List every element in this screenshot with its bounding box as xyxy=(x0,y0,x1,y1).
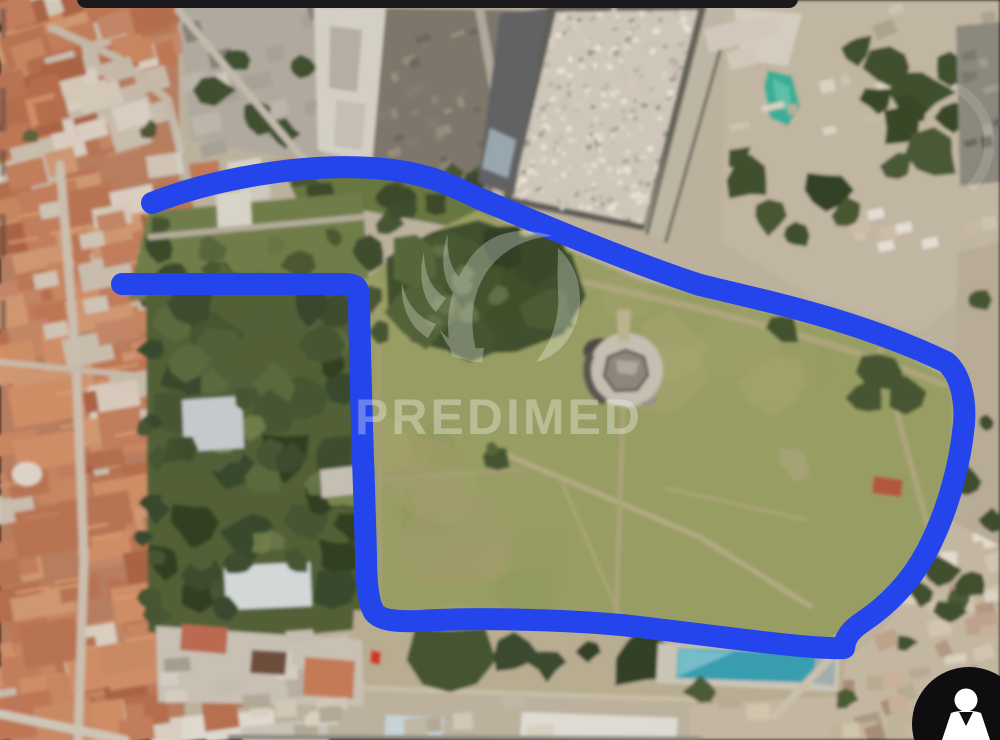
svg-text:PREDIMED: PREDIMED xyxy=(355,389,643,445)
